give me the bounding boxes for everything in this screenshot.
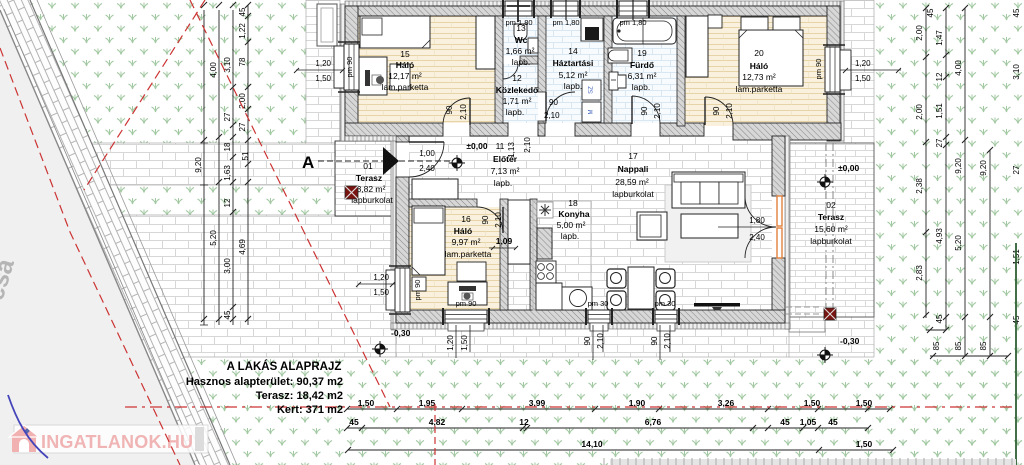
svg-text:lapb.: lapb.: [512, 57, 530, 67]
svg-text:lam.parketta: lam.parketta: [736, 84, 783, 94]
svg-text:Hasznos alapterület: 90,37 m2: Hasznos alapterület: 90,37 m2: [186, 376, 343, 388]
svg-text:18: 18: [568, 198, 578, 208]
svg-text:18: 18: [223, 142, 232, 151]
svg-text:27: 27: [935, 138, 944, 147]
svg-text:Háló: Háló: [454, 226, 472, 236]
svg-text:Kert: 371 m2: Kert: 371 m2: [277, 404, 343, 416]
svg-text:27: 27: [223, 112, 232, 121]
svg-text:lapburkolat: lapburkolat: [810, 236, 852, 246]
svg-text:12: 12: [935, 72, 944, 81]
svg-text:78: 78: [238, 57, 247, 66]
svg-text:12: 12: [519, 417, 529, 427]
svg-text:16: 16: [461, 214, 471, 224]
svg-text:1,47: 1,47: [935, 30, 944, 46]
svg-text:1,20: 1,20: [315, 59, 331, 68]
svg-text:1,09: 1,09: [496, 236, 513, 246]
svg-text:2,10: 2,10: [653, 103, 662, 119]
svg-text:INGATLANOK.HU: INGATLANOK.HU: [41, 432, 193, 452]
svg-text:2,10: 2,10: [494, 212, 503, 228]
svg-text:Közlekedő: Közlekedő: [496, 85, 539, 95]
svg-text:9,97 m²: 9,97 m²: [452, 237, 481, 247]
svg-text:45: 45: [349, 417, 359, 427]
svg-text:pm 30: pm 30: [655, 299, 676, 308]
svg-text:4,69: 4,69: [238, 239, 247, 255]
svg-text:pm 1,80: pm 1,80: [552, 18, 579, 27]
svg-text:19: 19: [637, 48, 647, 58]
svg-text:2,38: 2,38: [915, 178, 924, 194]
svg-text:lapb.: lapb.: [494, 178, 512, 188]
svg-text:4,00: 4,00: [954, 60, 963, 76]
svg-text:1,50: 1,50: [856, 439, 873, 449]
svg-text:lam.parketta: lam.parketta: [382, 82, 429, 92]
svg-text:90: 90: [583, 336, 592, 345]
svg-text:14: 14: [568, 46, 578, 56]
svg-text:2,00: 2,00: [915, 104, 924, 120]
svg-text:90: 90: [650, 336, 659, 345]
svg-text:1,20: 1,20: [446, 335, 455, 351]
svg-text:1,63: 1,63: [223, 165, 232, 181]
svg-text:lam.parketta: lam.parketta: [445, 249, 492, 259]
svg-text:17: 17: [628, 151, 638, 161]
svg-text:A: A: [302, 153, 314, 172]
svg-text:15,60 m²: 15,60 m²: [814, 224, 848, 234]
svg-text:15: 15: [400, 49, 410, 59]
svg-text:4,00: 4,00: [209, 62, 218, 78]
svg-text:13: 13: [516, 23, 526, 33]
svg-text:1,71 m²: 1,71 m²: [503, 96, 532, 106]
svg-text:±0,00: ±0,00: [466, 141, 487, 151]
svg-text:1,50: 1,50: [373, 288, 389, 297]
svg-text:SZ: SZ: [589, 86, 595, 94]
svg-text:-0,30: -0,30: [391, 328, 411, 338]
svg-text:90: 90: [712, 106, 721, 115]
svg-text:pm 30: pm 30: [588, 299, 609, 308]
svg-text:5,20: 5,20: [954, 235, 963, 251]
svg-text:Konyha: Konyha: [558, 209, 589, 219]
svg-text:-0,30: -0,30: [840, 336, 860, 346]
svg-text:5,12 m²: 5,12 m²: [559, 70, 588, 80]
svg-text:7,13 m²: 7,13 m²: [491, 166, 520, 176]
svg-text:M: M: [589, 110, 595, 115]
svg-text:45: 45: [238, 7, 247, 16]
svg-text:5,00 m²: 5,00 m²: [557, 220, 586, 230]
svg-text:45: 45: [223, 310, 232, 319]
svg-text:4,93: 4,93: [935, 228, 944, 244]
svg-text:14,10: 14,10: [581, 439, 603, 449]
svg-text:12,73 m²: 12,73 m²: [742, 72, 776, 82]
svg-text:2,10: 2,10: [544, 111, 560, 120]
svg-text:02: 02: [826, 200, 836, 210]
svg-text:Wc: Wc: [515, 35, 528, 45]
svg-text:2,40: 2,40: [749, 233, 765, 242]
svg-text:90: 90: [640, 106, 649, 115]
svg-text:28,59 m²: 28,59 m²: [615, 177, 649, 187]
svg-text:1,05: 1,05: [800, 417, 817, 427]
svg-text:2,10: 2,10: [663, 333, 672, 349]
svg-text:4,82: 4,82: [429, 417, 446, 427]
svg-text:6,31 m²: 6,31 m²: [628, 71, 657, 81]
svg-text:pm 90: pm 90: [456, 299, 477, 308]
svg-text:12,17 m²: 12,17 m²: [388, 71, 422, 81]
svg-text:1,50: 1,50: [315, 74, 331, 83]
svg-text:2,10: 2,10: [459, 104, 468, 120]
svg-text:5,20: 5,20: [209, 230, 218, 246]
svg-text:1,51: 1,51: [935, 103, 944, 119]
svg-text:85: 85: [932, 341, 941, 350]
svg-text:2,10: 2,10: [596, 333, 605, 349]
svg-text:3,10: 3,10: [1012, 64, 1021, 80]
svg-text:pm 90: pm 90: [345, 57, 354, 78]
svg-text:1,80: 1,80: [749, 216, 765, 225]
svg-text:90: 90: [549, 98, 558, 107]
svg-text:1,00: 1,00: [419, 149, 435, 158]
svg-text:1,50: 1,50: [855, 74, 871, 83]
svg-text:85: 85: [954, 341, 963, 350]
svg-text:11: 11: [496, 141, 505, 151]
svg-text:Háztartási: Háztartási: [553, 58, 594, 68]
svg-text:Terasz: Terasz: [356, 173, 382, 183]
svg-text:lapb.: lapb.: [632, 82, 650, 92]
svg-text:1,50: 1,50: [460, 335, 469, 351]
svg-text:Háló: Háló: [396, 60, 414, 70]
svg-text:1,22: 1,22: [238, 23, 247, 39]
svg-text:6,76: 6,76: [645, 417, 662, 427]
svg-text:3,82 m²: 3,82 m²: [357, 184, 386, 194]
svg-text:Terasz: 18,42 m2: Terasz: 18,42 m2: [256, 390, 343, 402]
svg-text:A LAKÁS ALAPRAJZ: A LAKÁS ALAPRAJZ: [227, 360, 342, 373]
svg-text:pm 90: pm 90: [413, 280, 422, 301]
svg-text:9,20: 9,20: [954, 158, 963, 174]
svg-text:45: 45: [926, 8, 935, 17]
svg-text:27: 27: [1012, 165, 1021, 174]
svg-text:pm 1,80: pm 1,80: [619, 18, 646, 27]
svg-text:90: 90: [445, 105, 454, 114]
svg-text:45: 45: [1012, 8, 1021, 17]
svg-text:2,00: 2,00: [915, 25, 924, 41]
svg-text:45: 45: [828, 417, 838, 427]
svg-text:lapb.: lapb.: [564, 81, 582, 91]
svg-text:Háló: Háló: [750, 61, 768, 71]
svg-text:pm 90: pm 90: [814, 59, 823, 80]
svg-text:85: 85: [979, 341, 988, 350]
svg-text:51: 51: [241, 151, 250, 160]
svg-text:01: 01: [363, 161, 373, 171]
svg-text:±0,00: ±0,00: [838, 163, 859, 173]
svg-text:3,00: 3,00: [223, 258, 232, 274]
svg-text:45: 45: [935, 314, 944, 323]
svg-text:Nappali: Nappali: [618, 164, 649, 174]
svg-text:9,20: 9,20: [194, 157, 203, 173]
svg-text:Terasz: Terasz: [818, 212, 844, 222]
svg-text:1,20: 1,20: [373, 273, 389, 282]
svg-text:Fürdő: Fürdő: [630, 60, 654, 70]
svg-text:9,20: 9,20: [979, 160, 988, 176]
svg-text:1,13: 1,13: [507, 142, 516, 158]
svg-text:2,10: 2,10: [523, 137, 532, 153]
svg-text:lapburkolat: lapburkolat: [612, 189, 654, 199]
svg-text:lapb.: lapb.: [506, 107, 524, 117]
svg-text:2,40: 2,40: [419, 164, 435, 173]
svg-text:27: 27: [238, 122, 247, 131]
svg-text:2,83: 2,83: [915, 265, 924, 281]
svg-text:1,20: 1,20: [855, 59, 871, 68]
svg-text:20: 20: [754, 48, 764, 58]
svg-text:2,10: 2,10: [725, 103, 734, 119]
svg-text:1,66 m²: 1,66 m²: [506, 46, 535, 56]
svg-text:45: 45: [780, 417, 790, 427]
svg-text:lapb.: lapb.: [561, 231, 579, 241]
svg-text:90: 90: [481, 215, 490, 224]
svg-text:12: 12: [512, 73, 522, 83]
svg-text:12: 12: [223, 198, 232, 207]
